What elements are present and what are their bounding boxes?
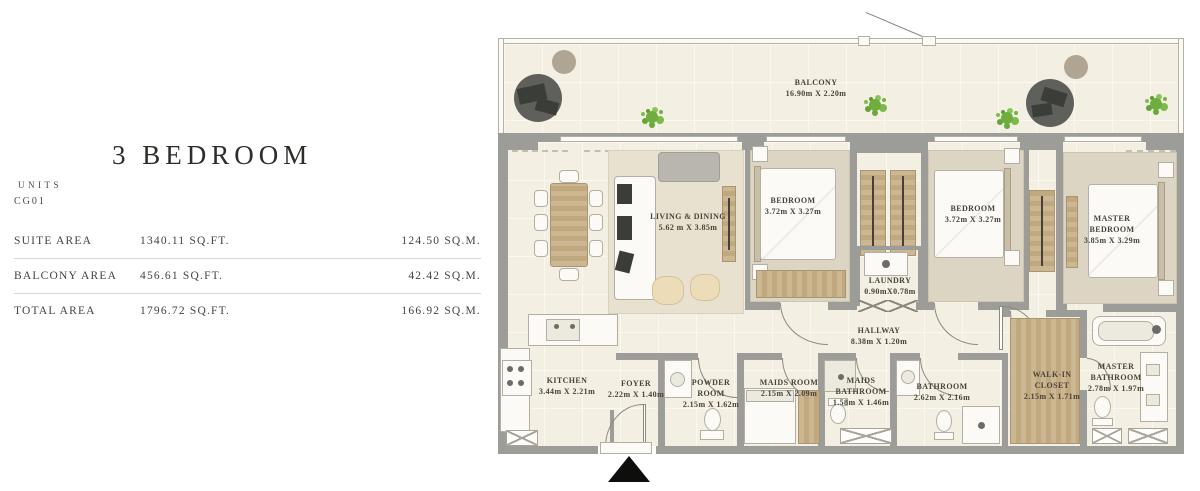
room-label-kitchen: KITCHEN 3.44m X 2.21m xyxy=(528,376,606,398)
window xyxy=(560,136,738,142)
shaft xyxy=(1128,428,1168,444)
nightstand xyxy=(1158,280,1174,296)
room-label-bedroom-1: BEDROOM 3.72m X 3.27m xyxy=(755,196,831,218)
room-label-bedroom-2: BEDROOM 3.72m X 3.27m xyxy=(935,204,1011,226)
faucet xyxy=(570,324,575,329)
burner xyxy=(518,380,524,386)
dining-chair xyxy=(559,268,579,281)
toilet-bowl xyxy=(704,408,721,431)
floor-plan-page: 3 BEDROOM UNITS CG01 SUITE AREA 1340.11 … xyxy=(0,0,1200,491)
burner xyxy=(507,380,513,386)
balcony-ottoman xyxy=(1064,55,1088,79)
room-label-laundry: LAUNDRY 0.90mX0.78m xyxy=(857,276,923,298)
room-name: BALCONY xyxy=(760,78,872,89)
wardrobe xyxy=(756,270,846,298)
room-dims: 8.38m X 1.20m xyxy=(838,337,920,348)
balcony-rail-top xyxy=(502,38,1182,44)
shaft xyxy=(506,430,538,446)
room-dims: 3.44m X 2.21m xyxy=(528,387,606,398)
room-dims: 2.15m X 1.62m xyxy=(677,400,745,411)
toilet-bowl xyxy=(936,410,952,432)
wall-segment xyxy=(958,353,1002,360)
shower-drain xyxy=(978,422,985,429)
room-label-bathroom: BATHROOM 2.62m X 2.16m xyxy=(906,382,978,404)
room-name: MAIDS ROOM xyxy=(755,378,823,389)
gate-post xyxy=(858,36,870,46)
wall-segment xyxy=(1046,310,1080,317)
dining-chair xyxy=(534,190,548,207)
room-label-maids-bathroom: MAIDS BATHROOM 1.58m X 1.46m xyxy=(825,376,897,408)
dining-chair xyxy=(589,214,603,231)
room-dims: 2.15m X 2.09m xyxy=(755,389,823,400)
bathtub-inner xyxy=(1098,321,1154,341)
window xyxy=(1064,136,1142,142)
wall-bottom xyxy=(656,446,1184,454)
nightstand xyxy=(1004,250,1020,266)
room-label-hallway: HALLWAY 8.38m X 1.20m xyxy=(838,326,920,348)
toilet-bowl xyxy=(1094,396,1111,418)
closet-rod xyxy=(872,176,874,250)
window xyxy=(766,136,846,142)
room-dims: 1.58m X 1.46m xyxy=(825,398,897,409)
bathtub-faucet xyxy=(1152,325,1161,334)
dining-chair xyxy=(534,240,548,257)
toilet-tank xyxy=(934,432,954,440)
room-label-powder-room: POWDER ROOM 2.15m X 1.62m xyxy=(677,378,745,410)
room-name: LAUNDRY xyxy=(857,276,923,287)
wall-pier xyxy=(850,133,928,153)
plant-icon xyxy=(869,99,881,111)
room-name: BEDROOM xyxy=(935,204,1011,215)
floor-plan: BALCONY 16.90m X 2.20m LIVING & DINING 5… xyxy=(0,0,1200,491)
room-dims: 16.90m X 2.20m xyxy=(760,89,872,100)
plant-icon xyxy=(1150,98,1162,110)
gate-post xyxy=(922,36,936,46)
room-dims: 3.85m X 3.29m xyxy=(1072,236,1152,247)
room-dims: 3.72m X 3.27m xyxy=(755,207,831,218)
dining-chair xyxy=(589,190,603,207)
wall-segment xyxy=(1002,353,1008,446)
room-name: MASTER BATHROOM xyxy=(1082,362,1150,384)
wall-segment xyxy=(828,302,850,310)
shaft xyxy=(1092,428,1122,444)
room-name: HALLWAY xyxy=(838,326,920,337)
room-dims: 2.62m X 2.16m xyxy=(906,393,978,404)
plant-icon xyxy=(1001,112,1013,124)
room-name: FOYER xyxy=(602,379,670,390)
loveseat xyxy=(658,152,720,182)
washer-drum xyxy=(882,260,890,268)
room-label-master-bathroom: MASTER BATHROOM 2.78m X 1.97m xyxy=(1082,362,1150,394)
wall-segment xyxy=(1103,304,1176,312)
basin xyxy=(1146,394,1160,406)
room-name: LIVING & DINING xyxy=(628,212,748,223)
closet-rod xyxy=(902,176,904,250)
room-name: KITCHEN xyxy=(528,376,606,387)
wall-segment xyxy=(1080,310,1087,358)
toilet-tank xyxy=(700,430,724,440)
balcony-rail-left xyxy=(498,38,504,135)
bifold-door xyxy=(858,300,888,312)
faucet xyxy=(554,324,559,329)
wall-right xyxy=(1176,133,1184,454)
wall-segment xyxy=(856,246,922,250)
room-name: WALK-IN CLOSET xyxy=(1016,370,1088,392)
sofa-pillow xyxy=(617,184,632,204)
balcony-ottoman xyxy=(552,50,576,74)
wall-segment xyxy=(616,353,698,360)
window xyxy=(934,136,1018,142)
closet-rod xyxy=(1041,196,1043,266)
room-dims: 2.78m X 1.97m xyxy=(1082,384,1150,395)
plant-icon xyxy=(646,111,658,123)
wall-segment xyxy=(745,302,780,310)
room-dims: 2.15m X 1.71m xyxy=(1016,392,1088,403)
pouf xyxy=(690,274,720,301)
burner xyxy=(507,366,513,372)
nightstand xyxy=(752,146,768,162)
room-name: BATHROOM xyxy=(906,382,978,393)
door-leaf xyxy=(643,404,646,447)
entrance-marker xyxy=(608,456,650,482)
room-label-balcony: BALCONY 16.90m X 2.20m xyxy=(760,78,872,100)
dining-chair xyxy=(534,214,548,231)
headboard xyxy=(1158,182,1165,280)
dining-chair xyxy=(559,170,579,183)
room-dims: 0.90mX0.78m xyxy=(857,287,923,298)
pouf xyxy=(652,276,684,305)
room-name: BEDROOM xyxy=(755,196,831,207)
dining-chair xyxy=(589,240,603,257)
room-dims: 3.72m X 3.27m xyxy=(935,215,1011,226)
nightstand xyxy=(1004,148,1020,164)
burner xyxy=(518,366,524,372)
room-name: MAIDS BATHROOM xyxy=(825,376,897,398)
bifold-door xyxy=(888,300,918,312)
room-label-walk-in-closet: WALK-IN CLOSET 2.15m X 1.71m xyxy=(1016,370,1088,402)
nightstand xyxy=(1158,162,1174,178)
balcony-gate-door xyxy=(866,12,927,39)
room-dims: 5.62 m X 3.85m xyxy=(628,223,748,234)
kitchen-sink xyxy=(546,319,580,341)
curtain-mark xyxy=(512,150,568,152)
balcony-rail-right xyxy=(1178,38,1184,135)
room-label-foyer: FOYER 2.22m X 1.40m xyxy=(602,379,670,401)
entry-threshold xyxy=(600,442,652,454)
room-name: MASTER BEDROOM xyxy=(1072,214,1152,236)
dining-table xyxy=(550,183,588,267)
room-label-living-dining: LIVING & DINING 5.62 m X 3.85m xyxy=(628,212,748,234)
room-dims: 2.22m X 1.40m xyxy=(602,390,670,401)
shaft xyxy=(840,428,892,444)
room-label-maids-room: MAIDS ROOM 2.15m X 2.09m xyxy=(755,378,823,400)
room-name: POWDER ROOM xyxy=(677,378,745,400)
toilet-tank xyxy=(1092,418,1113,426)
wall-segment xyxy=(1056,140,1063,310)
wall-bottom xyxy=(498,446,598,454)
room-label-master-bedroom: MASTER BEDROOM 3.85m X 3.29m xyxy=(1072,214,1152,246)
